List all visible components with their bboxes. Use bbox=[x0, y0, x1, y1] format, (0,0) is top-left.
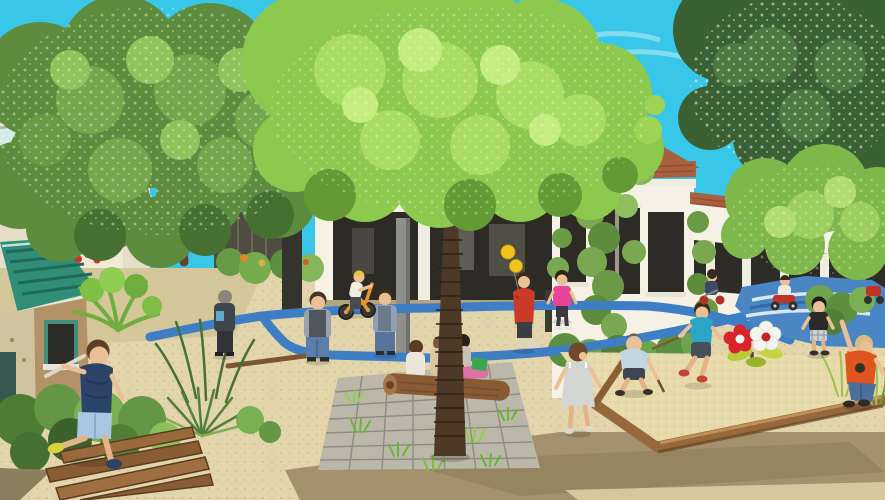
balloon bbox=[510, 260, 523, 273]
playhouse-window bbox=[46, 322, 76, 366]
rendering-canvas bbox=[0, 0, 885, 500]
red-trike bbox=[866, 286, 881, 296]
playground-rendering bbox=[0, 0, 885, 500]
balloon bbox=[501, 245, 515, 259]
green-bag bbox=[471, 357, 488, 371]
window-3 bbox=[648, 212, 684, 294]
